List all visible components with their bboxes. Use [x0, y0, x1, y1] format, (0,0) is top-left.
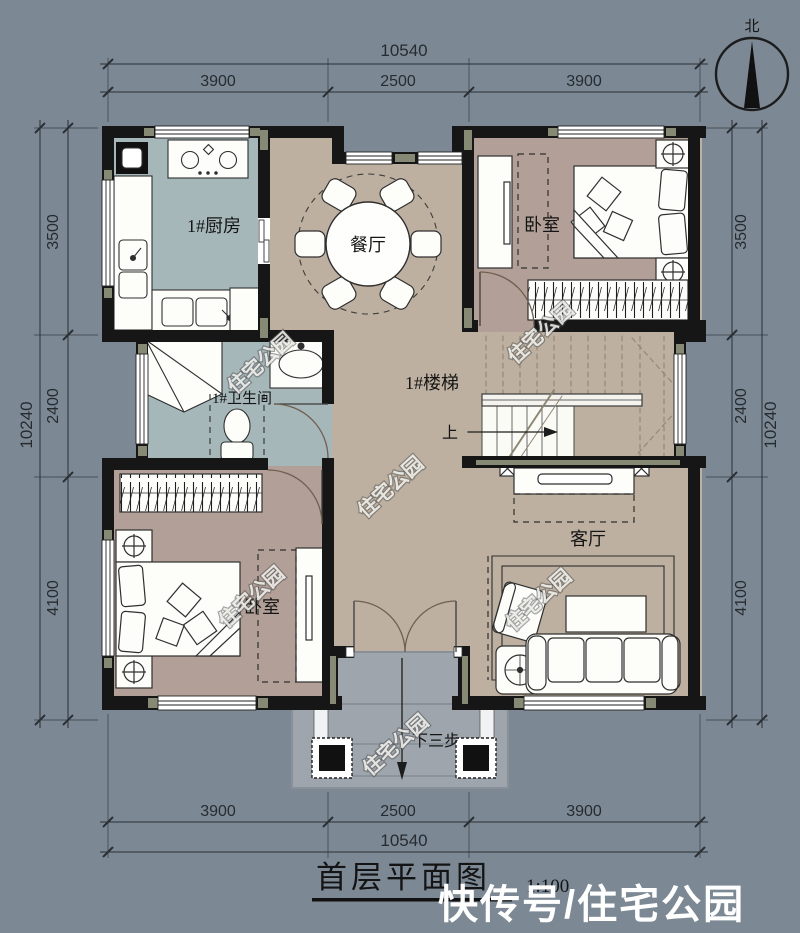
tv	[538, 474, 612, 484]
dim-top-total: 10540	[380, 41, 427, 60]
recess-west	[100, 342, 136, 458]
dim-left-seg-2: 2400	[45, 388, 62, 424]
dim-top-seg-1: 3900	[200, 73, 236, 90]
dim-top-seg-3: 3900	[566, 73, 602, 90]
kitchen-counter-left	[114, 176, 152, 330]
footer-watermark: 快传号/住宅公园	[438, 882, 745, 927]
dim-right-seg-2: 2400	[733, 388, 750, 424]
dim-bottom-seg-3: 3900	[566, 803, 602, 820]
dim-bottom-total: 10540	[380, 831, 427, 850]
stairs-label: 1#楼梯	[405, 373, 459, 393]
stair-lower-flight	[482, 406, 574, 462]
dim-bottom-seg-2: 2500	[380, 803, 416, 820]
kitchen-label: 1#厨房	[187, 216, 241, 236]
dim-right-total: 10240	[761, 401, 780, 448]
pillow	[118, 611, 145, 653]
dim-left-seg-3: 4100	[45, 580, 62, 616]
pillow	[118, 565, 145, 607]
living-label: 客厅	[570, 529, 606, 549]
stairs-up-label: 上	[442, 424, 458, 442]
dim-left-seg-1: 3500	[45, 214, 62, 250]
compass-needle	[744, 41, 760, 108]
porch-column-right-core	[463, 745, 489, 771]
dim-right-seg-3: 4100	[733, 580, 750, 616]
window-bedroom-sw-south	[158, 696, 256, 710]
bedroom-ne-label: 卧室	[524, 215, 560, 235]
window-bedroom-sw-west	[102, 540, 114, 656]
recess-east	[686, 342, 708, 456]
toilet-tank	[221, 442, 253, 460]
floor-plan-page: 10540 3900 2500 3900 3900 2500 3900 1054…	[0, 0, 800, 933]
window-living-south	[524, 696, 644, 710]
window-kitchen-west	[102, 180, 114, 286]
door-kitchen-sliding	[258, 218, 270, 264]
dining-label: 餐厅	[350, 235, 386, 255]
floor-plan-svg: 10540 3900 2500 3900 3900 2500 3900 1054…	[0, 0, 800, 933]
dim-bottom-seg-1: 3900	[200, 803, 236, 820]
dim-top-seg-2: 2500	[380, 73, 416, 90]
window-bathroom-west	[136, 354, 148, 444]
window-stairs-east	[674, 354, 686, 444]
pillow	[658, 213, 687, 255]
dim-right-seg-1: 3500	[733, 214, 750, 250]
toilet-bowl	[224, 409, 250, 443]
porch-column-left-core	[319, 745, 345, 771]
fridge	[230, 288, 262, 332]
north-arrow: 北	[716, 18, 788, 110]
window-bedroom-ne-north	[558, 126, 664, 138]
coffee-table	[566, 596, 646, 632]
sofa	[526, 634, 678, 694]
north-label: 北	[744, 18, 759, 35]
recess-north	[344, 110, 452, 152]
window-kitchen-north	[155, 126, 249, 138]
dim-left-total: 10240	[17, 401, 36, 448]
title-block: 首层平面图 1:100 快传号/住宅公园	[312, 860, 745, 927]
pillow	[658, 169, 687, 211]
